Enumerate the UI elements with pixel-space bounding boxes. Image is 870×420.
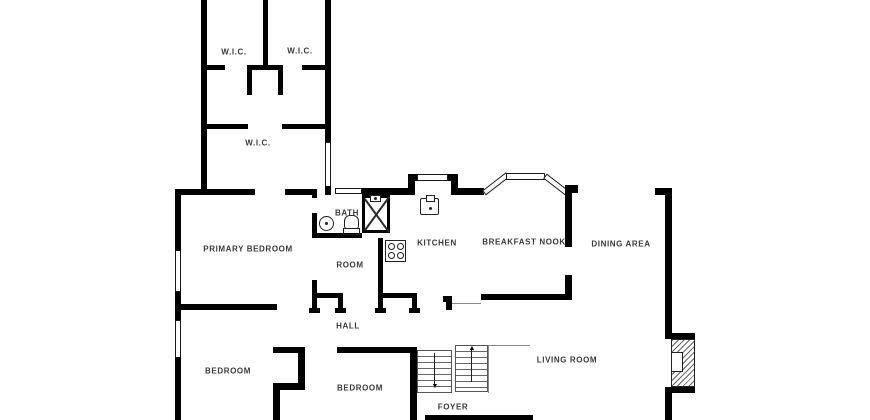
- wall: [312, 189, 317, 198]
- window-icon: [335, 188, 362, 194]
- wall: [309, 308, 320, 313]
- bay-window-icon: [506, 173, 545, 180]
- wall: [452, 303, 481, 304]
- wall: [425, 415, 533, 420]
- wall: [203, 65, 225, 70]
- fixture-detail: [388, 243, 395, 250]
- wall: [325, 0, 331, 144]
- wall: [362, 188, 408, 195]
- wall: [378, 238, 383, 313]
- window-icon: [175, 250, 181, 292]
- wall: [665, 393, 672, 420]
- stove-icon: [385, 240, 406, 262]
- fixture-detail: [397, 252, 404, 259]
- room-label-dining-area: DINING AREA: [591, 240, 650, 249]
- wall: [665, 188, 672, 333]
- kitchen-sink-icon: [420, 198, 439, 215]
- wall: [489, 345, 530, 346]
- room-label-wic-upper-right: W.I.C.: [287, 47, 312, 56]
- room-label-breakfast-nook: BREAKFAST NOOK: [482, 238, 566, 247]
- fixture-detail: [429, 207, 432, 210]
- wall: [273, 383, 305, 390]
- wall: [175, 189, 181, 250]
- wall: [337, 347, 417, 353]
- wall: [325, 186, 331, 195]
- fixture-detail: [388, 252, 395, 259]
- window-icon: [325, 142, 331, 188]
- window-icon: [417, 174, 448, 181]
- room-label-hall: HALL: [336, 322, 360, 331]
- wall: [565, 185, 578, 193]
- wall: [458, 188, 484, 195]
- wall: [201, 0, 207, 190]
- wall: [278, 65, 283, 95]
- stairs-up-arrow-icon: ▲: [469, 345, 476, 352]
- room-label-bedroom-middle: BEDROOM: [337, 384, 383, 393]
- bathroom-sink-icon: [319, 216, 334, 231]
- stairs-down-arrow-icon: ▼: [432, 383, 439, 390]
- wall: [302, 65, 331, 70]
- wall: [471, 350, 472, 382]
- window-icon: [175, 320, 181, 358]
- toilet-icon: [343, 215, 359, 234]
- fixture-detail: [397, 243, 404, 250]
- wall: [203, 124, 248, 129]
- room-label-kitchen: KITCHEN: [417, 239, 457, 248]
- wall: [434, 353, 435, 385]
- room-label-living-room: LIVING ROOM: [537, 356, 597, 365]
- floor-plan: ▼ ▲ W.I.C.W.I.C.W.I.C.PRIMARY BEDROOMBAT…: [0, 0, 870, 420]
- wall: [451, 174, 458, 195]
- wall: [176, 189, 255, 195]
- room-label-primary-bedroom: PRIMARY BEDROOM: [203, 245, 292, 254]
- fixture-detail: [325, 222, 328, 225]
- wall: [247, 65, 252, 95]
- firebox-icon: [671, 352, 683, 372]
- room-label-foyer: FOYER: [438, 403, 469, 412]
- wall: [409, 308, 420, 313]
- wall: [175, 358, 181, 420]
- room-label-wic-upper-left: W.I.C.: [221, 48, 246, 57]
- fixture-detail: [374, 197, 377, 200]
- wall: [282, 124, 331, 129]
- room-label-bath: BATH: [335, 209, 359, 218]
- wall: [565, 193, 572, 247]
- wall: [263, 0, 268, 68]
- wall: [273, 390, 280, 420]
- room-label-room: ROOM: [336, 261, 363, 270]
- wall: [176, 304, 277, 310]
- wall: [446, 300, 452, 310]
- wall: [375, 308, 386, 313]
- wall: [481, 294, 572, 300]
- wall: [488, 345, 489, 393]
- wall: [335, 308, 346, 313]
- room-label-bedroom-left: BEDROOM: [205, 367, 251, 376]
- room-label-wic-lower: W.I.C.: [245, 139, 270, 148]
- wall: [410, 347, 417, 420]
- wall: [565, 275, 572, 294]
- shower-head-icon: [370, 195, 381, 202]
- wall: [285, 189, 312, 195]
